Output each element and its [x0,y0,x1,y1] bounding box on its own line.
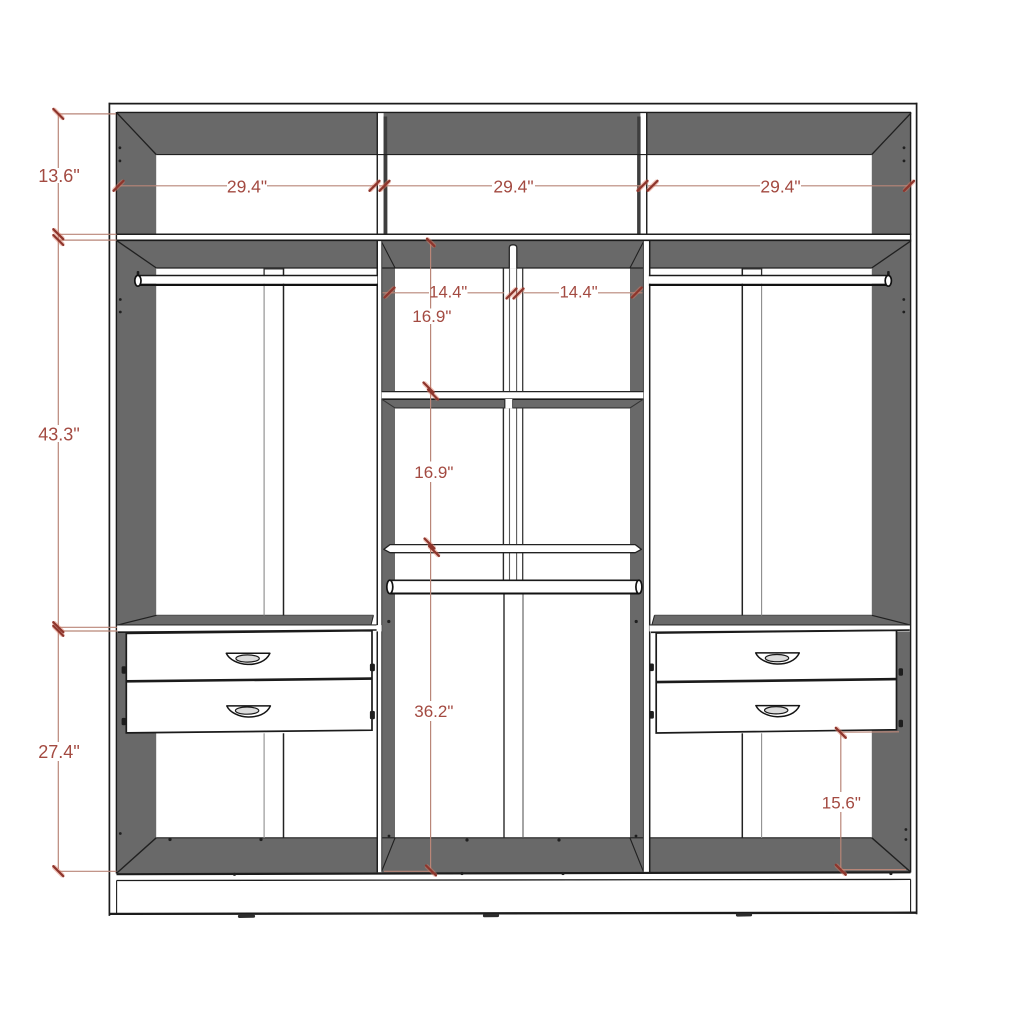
svg-text:27.4": 27.4" [38,742,79,762]
svg-text:15.6": 15.6" [822,794,861,813]
svg-text:36.2": 36.2" [414,702,453,721]
svg-text:29.4": 29.4" [227,177,267,197]
svg-text:16.9": 16.9" [412,307,451,326]
svg-text:14.4": 14.4" [560,284,598,302]
svg-text:16.9": 16.9" [414,463,453,482]
svg-text:13.6": 13.6" [38,166,79,186]
svg-text:29.4": 29.4" [760,177,800,197]
svg-text:14.4": 14.4" [429,284,467,302]
svg-text:29.4": 29.4" [493,177,533,197]
svg-text:43.3": 43.3" [38,425,79,445]
